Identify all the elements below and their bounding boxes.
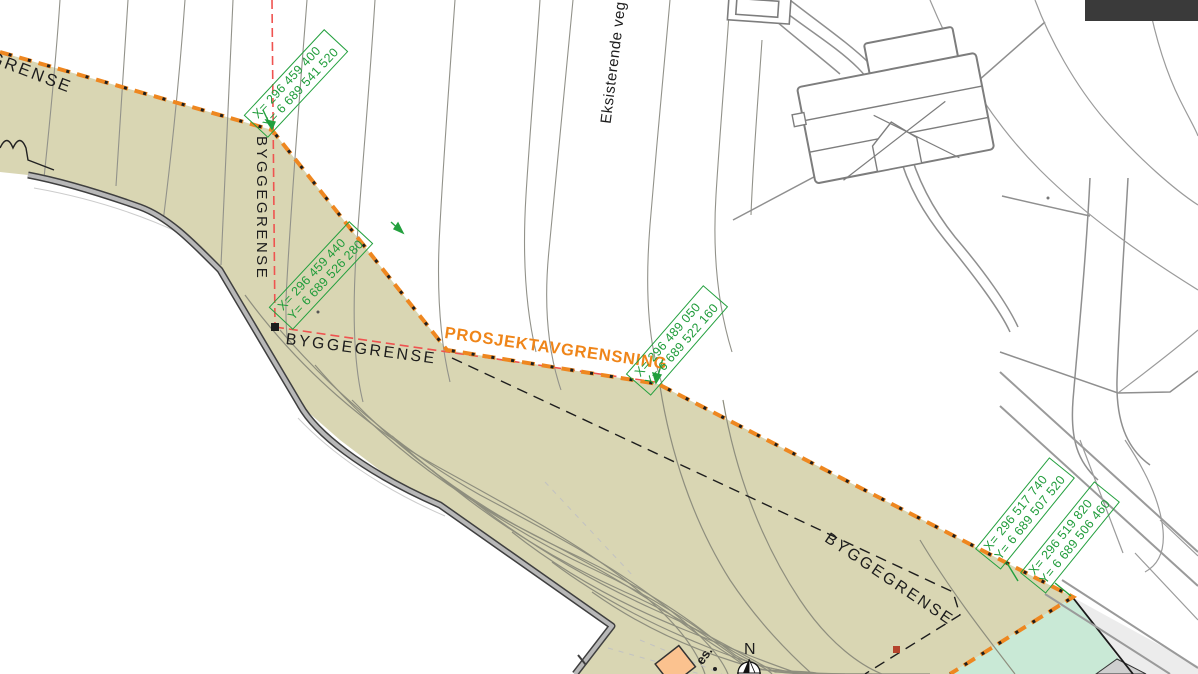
reference-point-marker: [271, 323, 279, 331]
map-dot2: [1047, 197, 1050, 200]
building-large: [781, 23, 994, 187]
byggegrense-label-vertical: BYGGEGRENSE: [253, 136, 270, 280]
boundary-point-marker: [893, 646, 900, 653]
site-plan-map: GRENSE BYGGEGRENSE BYGGEGRENSE BYGGEGREN…: [0, 0, 1198, 674]
map-canvas: [0, 0, 1198, 674]
map-dot: [317, 311, 320, 314]
building-small: [727, 0, 791, 24]
north-letter-label: N: [744, 641, 756, 659]
map-dot3: [713, 667, 717, 671]
corner-dark-rect: [1085, 0, 1198, 21]
